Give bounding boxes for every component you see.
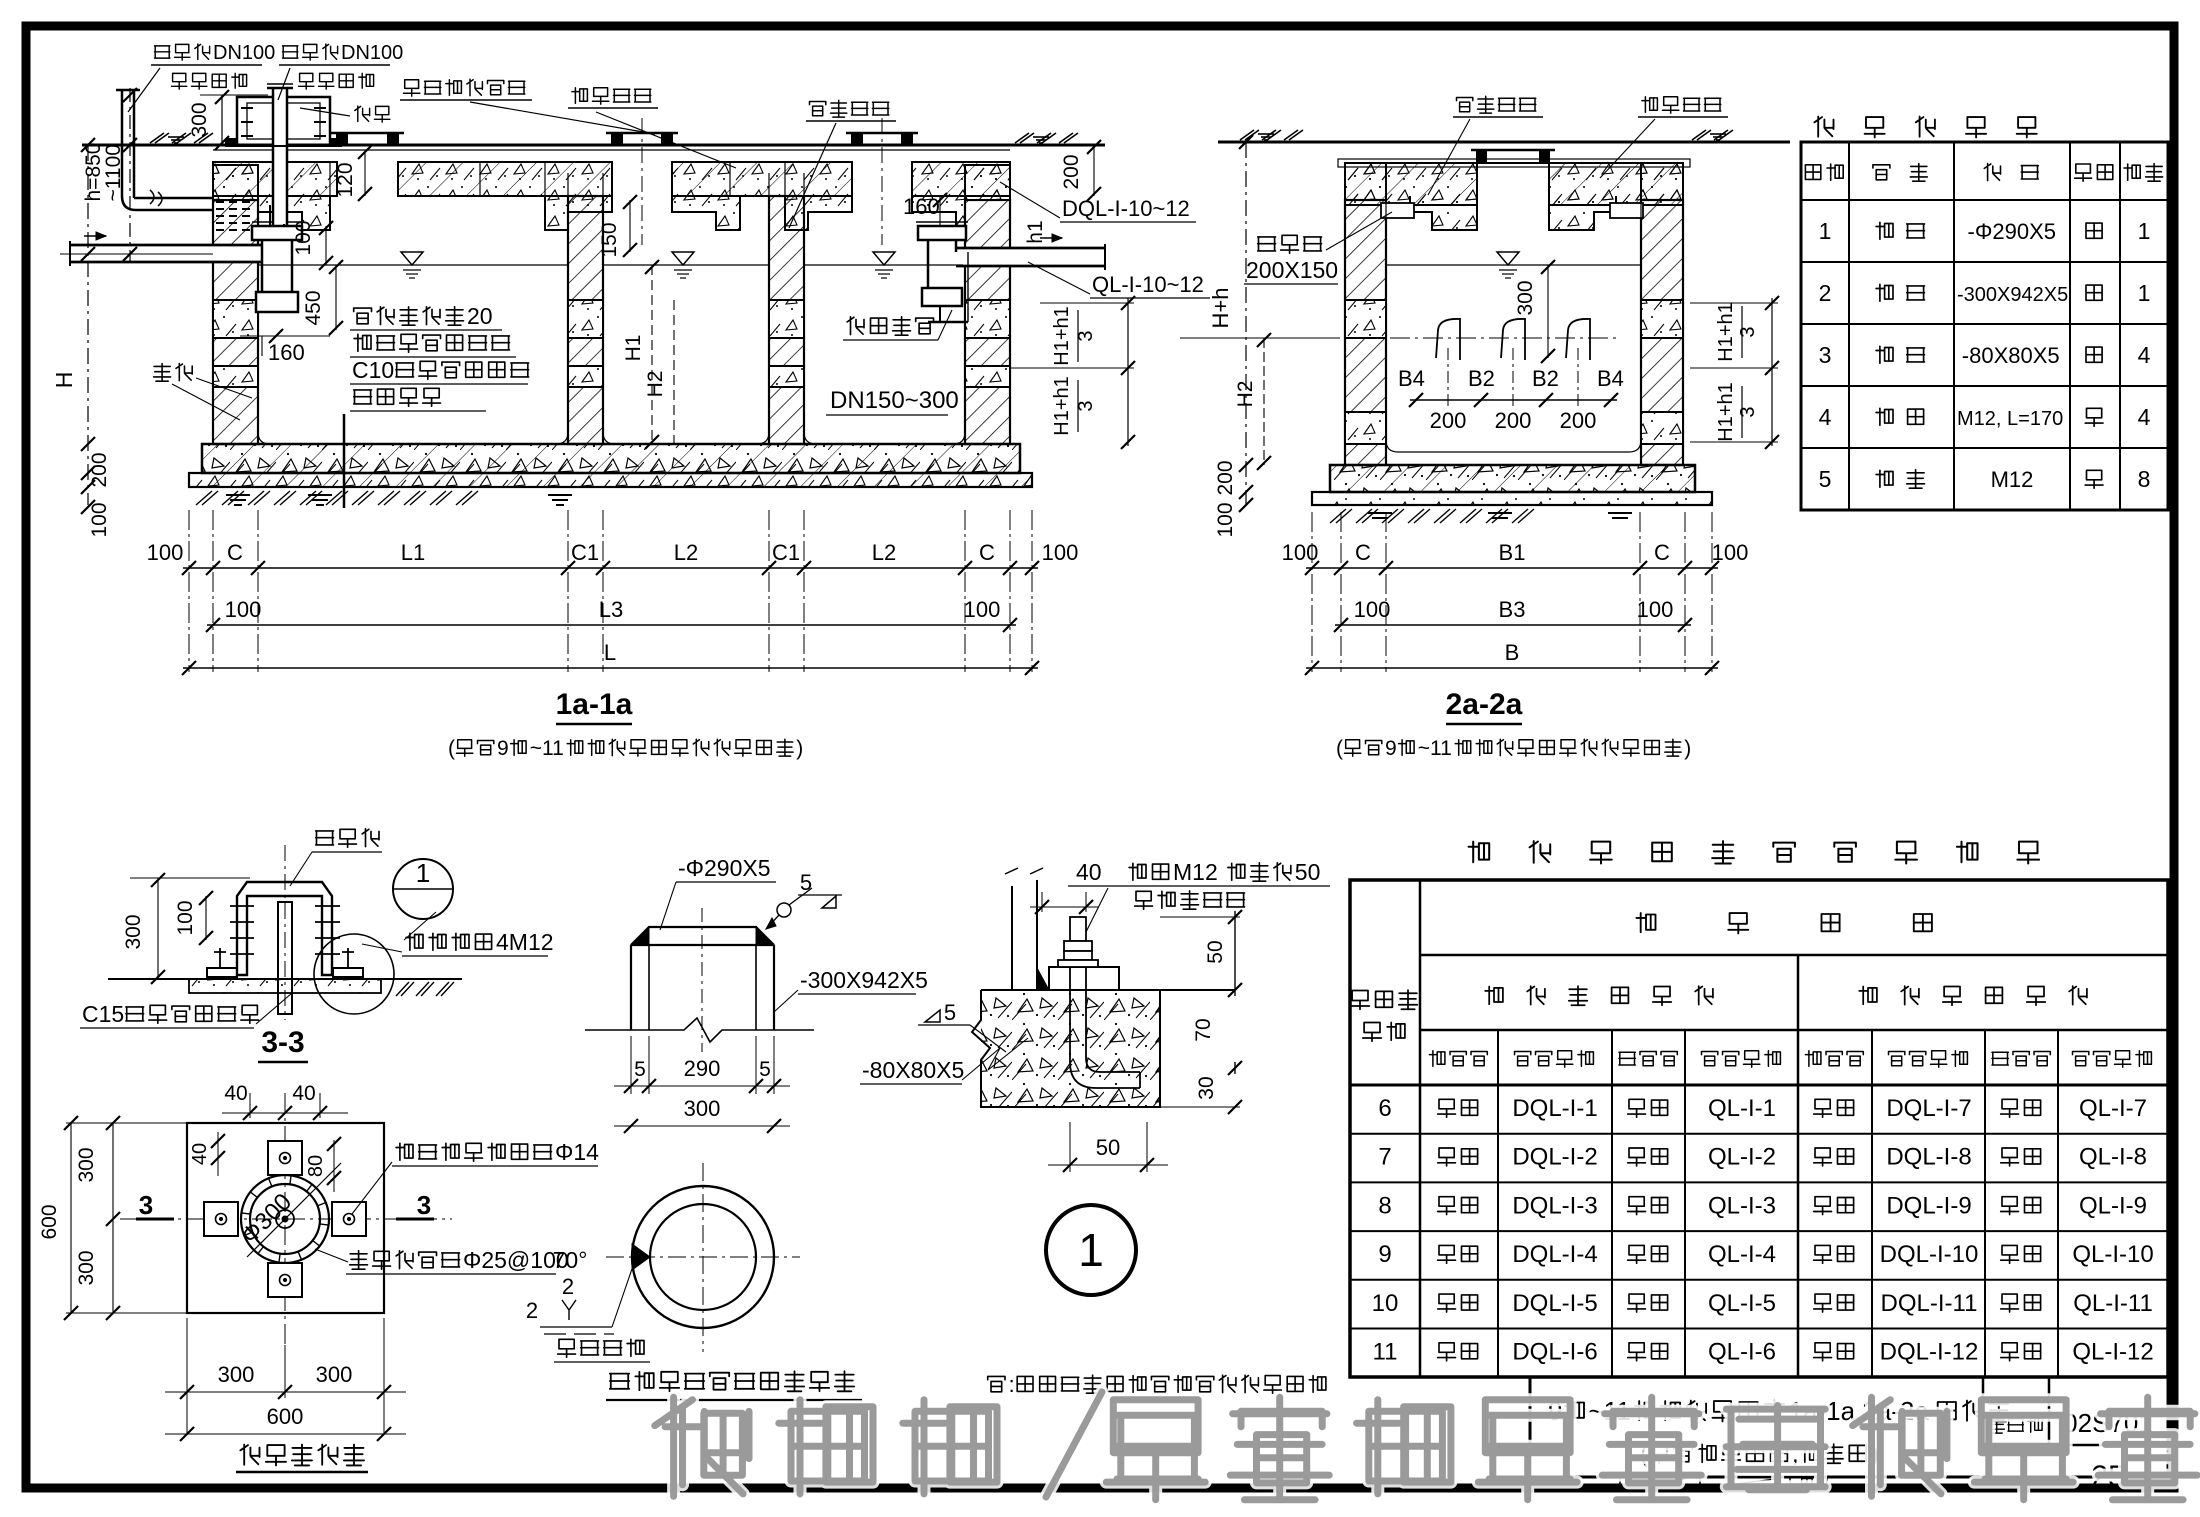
svg-text:70: 70: [1192, 1018, 1215, 1041]
svg-text:H1: H1: [622, 335, 645, 362]
svg-text:-300X942X5: -300X942X5: [800, 967, 928, 993]
svg-text:100: 100: [1214, 502, 1237, 537]
svg-text:): ): [1684, 737, 1691, 760]
svg-text:3: 3: [417, 1190, 431, 1220]
svg-text:5: 5: [759, 1058, 771, 1081]
svg-text:QL-I-8: QL-I-8: [2079, 1144, 2147, 1171]
svg-text:100: 100: [88, 502, 111, 537]
svg-text:2: 2: [1819, 280, 1832, 306]
svg-text:(: (: [448, 737, 455, 760]
svg-text:100: 100: [1354, 597, 1391, 622]
svg-text:H1+h1: H1+h1: [1715, 382, 1737, 442]
svg-text:DN100: DN100: [213, 42, 275, 64]
svg-text:B4: B4: [1597, 366, 1624, 391]
svg-text:B2: B2: [1468, 366, 1495, 391]
svg-text:300: 300: [188, 102, 211, 137]
svg-text:10: 10: [1372, 1290, 1399, 1317]
svg-text::: :: [1009, 1372, 1015, 1397]
svg-text:DQL-I-11: DQL-I-11: [1881, 1290, 1978, 1317]
svg-text:C: C: [1654, 540, 1670, 565]
svg-text:C1: C1: [772, 540, 800, 565]
svg-text:B4: B4: [1398, 366, 1425, 391]
svg-text:C10: C10: [352, 357, 394, 383]
svg-text:QL-I-2: QL-I-2: [1708, 1144, 1776, 1171]
svg-text:DN100: DN100: [341, 42, 403, 64]
svg-text:-80X80X5: -80X80X5: [1962, 343, 2060, 368]
svg-text:~11: ~11: [530, 737, 564, 760]
svg-text:300: 300: [122, 914, 145, 949]
svg-text:300: 300: [75, 1250, 98, 1285]
svg-text:L: L: [604, 640, 616, 665]
svg-text:7: 7: [1378, 1144, 1391, 1171]
svg-text:QL-I-6: QL-I-6: [1708, 1339, 1776, 1366]
svg-text:80: 80: [305, 1155, 327, 1177]
svg-text:3-3: 3-3: [261, 1026, 304, 1059]
svg-text:200: 200: [1430, 408, 1467, 433]
svg-text:M12, L=170: M12, L=170: [1957, 408, 2063, 430]
svg-text:QL-I-5: QL-I-5: [1708, 1290, 1776, 1317]
svg-text:30: 30: [1195, 1076, 1218, 1099]
svg-text:B2: B2: [1532, 366, 1559, 391]
svg-text:B1: B1: [1499, 540, 1526, 565]
svg-text:L3: L3: [599, 597, 623, 622]
svg-text:-Φ290X5: -Φ290X5: [1968, 219, 2057, 244]
svg-text:2a-2a: 2a-2a: [1446, 688, 1523, 721]
svg-text:DQL-I-12: DQL-I-12: [1880, 1339, 1979, 1366]
svg-text:6: 6: [1378, 1095, 1391, 1122]
svg-text:DQL-I-10~12: DQL-I-10~12: [1062, 196, 1190, 221]
svg-text:40: 40: [189, 1143, 211, 1165]
svg-text:450: 450: [302, 290, 325, 325]
svg-text:100: 100: [147, 540, 184, 565]
svg-text:100: 100: [964, 597, 1001, 622]
svg-text:100: 100: [1637, 597, 1674, 622]
svg-text:DQL-I-6: DQL-I-6: [1512, 1339, 1597, 1366]
svg-text:3: 3: [1819, 342, 1832, 368]
svg-text:): ): [796, 737, 803, 760]
svg-text:C: C: [227, 540, 243, 565]
svg-text:H+h: H+h: [1208, 288, 1233, 329]
svg-text:M12: M12: [1991, 467, 2034, 492]
svg-text:DQL-I-2: DQL-I-2: [1512, 1144, 1597, 1171]
svg-text:1: 1: [2138, 218, 2151, 244]
svg-text:300: 300: [316, 1362, 353, 1387]
svg-text:300: 300: [218, 1362, 255, 1387]
svg-text:-300X942X5: -300X942X5: [1957, 284, 2068, 306]
svg-text:L1: L1: [401, 540, 425, 565]
svg-text:1: 1: [1078, 1224, 1104, 1276]
svg-text:H2: H2: [1234, 381, 1257, 408]
svg-text:DQL-I-9: DQL-I-9: [1886, 1192, 1971, 1219]
svg-text:300: 300: [75, 1147, 98, 1182]
svg-text:1: 1: [416, 858, 430, 888]
svg-text:160: 160: [268, 340, 305, 365]
svg-text:100: 100: [1282, 540, 1319, 565]
svg-text:200: 200: [1495, 408, 1532, 433]
svg-text:B: B: [1505, 640, 1520, 665]
svg-text:Φ14: Φ14: [555, 1139, 599, 1165]
svg-text:QL-I-7: QL-I-7: [2079, 1095, 2147, 1122]
svg-text:100: 100: [174, 900, 197, 935]
svg-text:2: 2: [562, 1274, 574, 1299]
svg-text:4M12: 4M12: [496, 929, 554, 955]
svg-text:200: 200: [1560, 408, 1597, 433]
svg-text:5: 5: [944, 1000, 956, 1025]
svg-text:DQL-I-8: DQL-I-8: [1886, 1144, 1971, 1171]
svg-text:H1+h1: H1+h1: [1051, 376, 1073, 436]
svg-text:DQL-I-5: DQL-I-5: [1512, 1290, 1597, 1317]
svg-text:200: 200: [1060, 154, 1083, 189]
svg-text:QL-I-10: QL-I-10: [2072, 1241, 2153, 1268]
svg-text:H1+h1: H1+h1: [1715, 302, 1737, 362]
svg-text:DN150~300: DN150~300: [830, 387, 959, 414]
svg-text:H2: H2: [644, 371, 667, 398]
svg-text:L2: L2: [674, 540, 698, 565]
svg-text:5: 5: [800, 870, 812, 895]
svg-text:100: 100: [1712, 540, 1749, 565]
svg-text:9: 9: [497, 737, 509, 760]
svg-text:QL-I-11: QL-I-11: [2073, 1290, 2153, 1317]
svg-text:DQL-I-7: DQL-I-7: [1886, 1095, 1971, 1122]
svg-text:290: 290: [684, 1056, 721, 1081]
svg-text:1: 1: [2138, 280, 2151, 306]
svg-text:40: 40: [1076, 859, 1102, 885]
svg-text:8: 8: [1378, 1192, 1391, 1219]
svg-text:40: 40: [224, 1082, 247, 1105]
svg-text:100: 100: [225, 597, 262, 622]
svg-text:~1100: ~1100: [102, 144, 125, 201]
svg-text:QL-I-10~12: QL-I-10~12: [1092, 272, 1204, 297]
svg-text:H1+h1: H1+h1: [1051, 306, 1073, 366]
svg-text:1: 1: [1819, 218, 1832, 244]
svg-text:50: 50: [1204, 940, 1227, 963]
svg-text:150: 150: [598, 222, 621, 257]
svg-text:C: C: [1355, 540, 1371, 565]
svg-text:50: 50: [1295, 859, 1321, 885]
svg-text:1a-1a: 1a-1a: [556, 688, 633, 721]
svg-text:3: 3: [139, 1190, 153, 1220]
svg-text:50: 50: [1096, 1135, 1120, 1160]
svg-text:DQL-I-1: DQL-I-1: [1512, 1095, 1597, 1122]
svg-text:9: 9: [1385, 737, 1397, 760]
svg-text:4: 4: [2138, 342, 2151, 368]
svg-text:C: C: [979, 540, 995, 565]
svg-text:9: 9: [1378, 1241, 1391, 1268]
svg-text:100: 100: [292, 220, 315, 255]
svg-text:C15: C15: [82, 1001, 124, 1027]
svg-text:5: 5: [1819, 466, 1832, 492]
svg-text:40: 40: [292, 1082, 315, 1105]
svg-text:~11: ~11: [1418, 737, 1452, 760]
svg-text:QL-I-3: QL-I-3: [1708, 1192, 1776, 1219]
svg-text:QL-I-1: QL-I-1: [1708, 1095, 1776, 1122]
svg-text:11: 11: [1373, 1339, 1398, 1366]
svg-text:200: 200: [1214, 460, 1237, 495]
svg-text:C1: C1: [571, 540, 599, 565]
svg-text:2: 2: [526, 1298, 538, 1323]
svg-text:600: 600: [38, 1204, 61, 1239]
svg-text:4: 4: [2138, 404, 2151, 430]
svg-text:H: H: [51, 372, 77, 389]
svg-text:DQL-I-10: DQL-I-10: [1880, 1241, 1979, 1268]
svg-text:300: 300: [1514, 280, 1537, 315]
svg-text:QL-I-9: QL-I-9: [2079, 1192, 2147, 1219]
svg-text:B3: B3: [1499, 597, 1526, 622]
svg-text:3: 3: [1737, 406, 1759, 417]
svg-text:h1: h1: [1024, 220, 1047, 243]
svg-text:4: 4: [1819, 404, 1832, 430]
svg-text:(: (: [1336, 737, 1343, 760]
svg-text:-Φ290X5: -Φ290X5: [678, 855, 771, 881]
svg-text:M12: M12: [1173, 859, 1218, 885]
svg-text:600: 600: [267, 1404, 304, 1429]
svg-text:DQL-I-3: DQL-I-3: [1512, 1192, 1597, 1219]
svg-text:L2: L2: [872, 540, 896, 565]
svg-text:300: 300: [684, 1096, 721, 1121]
svg-text:200X150: 200X150: [1246, 257, 1338, 283]
svg-text:5: 5: [634, 1058, 646, 1081]
svg-text:70°: 70°: [553, 1247, 588, 1273]
svg-text:DQL-I-4: DQL-I-4: [1512, 1241, 1597, 1268]
svg-text:3: 3: [1737, 326, 1759, 337]
svg-text:8: 8: [2138, 466, 2151, 492]
svg-text:20: 20: [467, 303, 493, 329]
svg-text:QL-I-12: QL-I-12: [2072, 1339, 2153, 1366]
svg-text:100: 100: [1042, 540, 1079, 565]
svg-text:-80X80X5: -80X80X5: [862, 1057, 964, 1083]
svg-text:120: 120: [334, 162, 357, 197]
svg-text:QL-I-4: QL-I-4: [1708, 1241, 1776, 1268]
